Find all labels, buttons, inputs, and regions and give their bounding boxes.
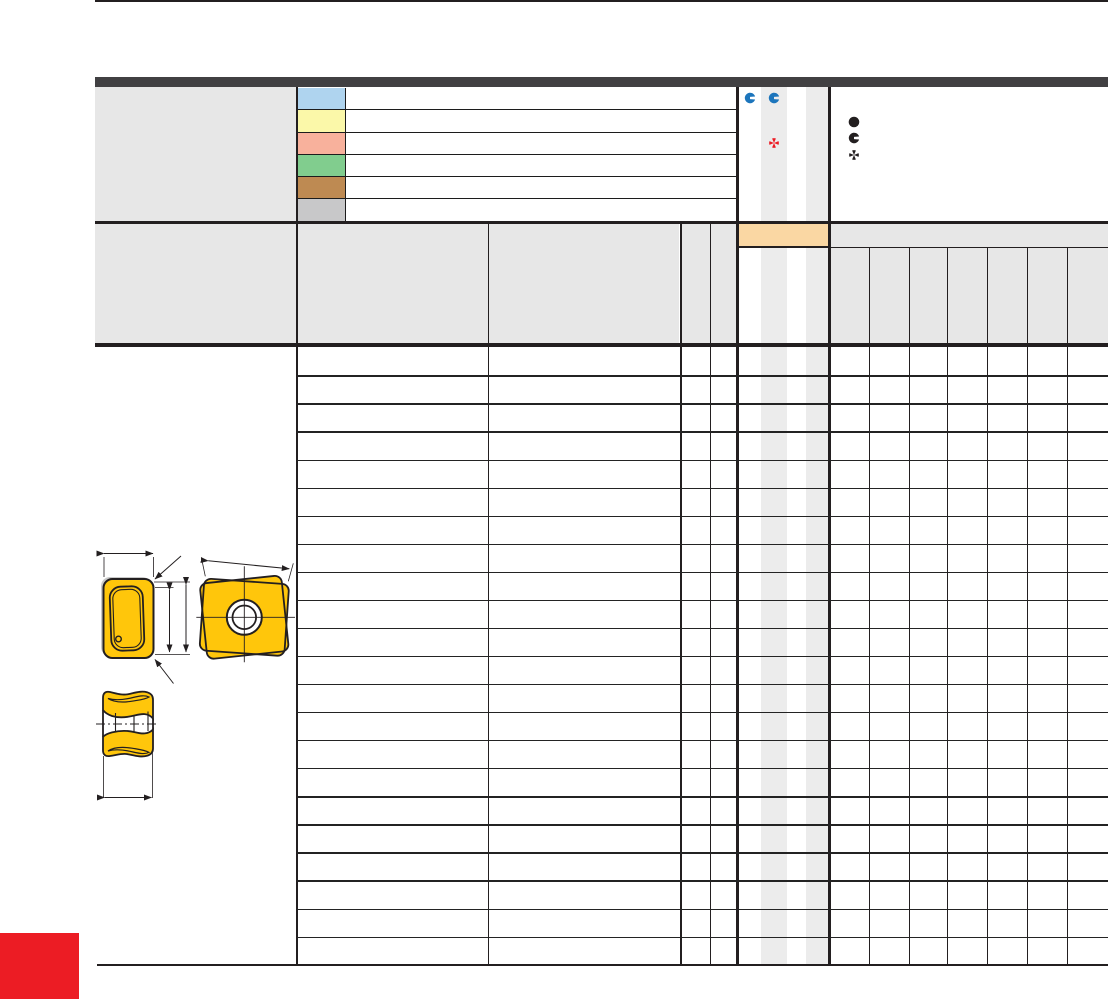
row-line [297,516,1108,517]
header-cell-narrow-1 [682,224,710,344]
insert-top-view-drawing [196,557,295,662]
legend-label [346,88,738,109]
table-bottom-rule [97,964,1108,966]
pacman-icon [768,92,780,104]
marker-column-stripe [761,87,787,965]
row-line [297,431,1108,432]
legend-label [346,155,738,176]
col-line [987,247,988,965]
row-line [297,937,1108,938]
col-line [947,247,948,965]
col-line [1027,247,1028,965]
pacman-icon [744,92,756,104]
legend-row [297,199,738,220]
row-line [297,880,1108,881]
header-bottom-rule [95,343,1108,347]
col-line [1067,247,1068,965]
col-line [296,87,299,965]
legend-row [297,133,738,155]
header-top-rule [95,221,1108,224]
header-cell-dimensions [489,224,679,344]
legend-label [346,177,738,198]
swatch-gray [297,199,346,220]
header-cell-insert-image [95,224,296,344]
row-line [297,488,1108,489]
row-line [297,544,1108,545]
insert-side-view-drawing [101,554,190,684]
header-cell-narrow-2 [711,224,736,344]
filled-circle-icon [848,116,860,128]
col-line [909,247,910,965]
legend-label [346,110,738,131]
row-line [297,824,1108,825]
col-line [869,247,870,965]
legend-row [297,88,738,110]
page-corner-red-block [0,933,79,999]
marker-column-stripe [806,87,828,965]
section-title-bar [95,77,1108,87]
row-line [297,460,1108,461]
legend-color-table [297,88,738,221]
legend-description-panel [95,87,296,221]
row-line [297,796,1108,797]
pacman-icon [848,132,860,144]
col-line [736,87,739,965]
legend-row [297,177,738,199]
insert-front-view-drawing [96,692,159,798]
row-line [297,768,1108,769]
row-line [297,712,1108,713]
legend-label [346,133,738,154]
row-line [297,909,1108,910]
header-cell-designation [298,224,488,344]
row-line [297,740,1108,741]
four-wedge-star-icon [768,137,780,149]
highlight-header-cell [739,224,828,249]
row-line [297,600,1108,601]
row-line [297,628,1108,629]
legend-label [346,199,738,220]
row-line [297,403,1108,404]
page-top-rule [95,0,1108,2]
col-line [828,87,831,965]
row-line [297,656,1108,657]
legend-row [297,110,738,132]
catalog-page [0,0,1108,1000]
insert-technical-drawings [95,540,295,815]
swatch-salmon [297,133,346,154]
row-line [297,684,1108,685]
legend-row [297,155,738,177]
row-line [297,852,1108,853]
row-line [297,572,1108,573]
row-line [297,375,1108,376]
swatch-blue [297,88,346,109]
swatch-yellow [297,110,346,131]
swatch-green [297,155,346,176]
swatch-brown [297,177,346,198]
four-wedge-star-icon [848,149,860,161]
